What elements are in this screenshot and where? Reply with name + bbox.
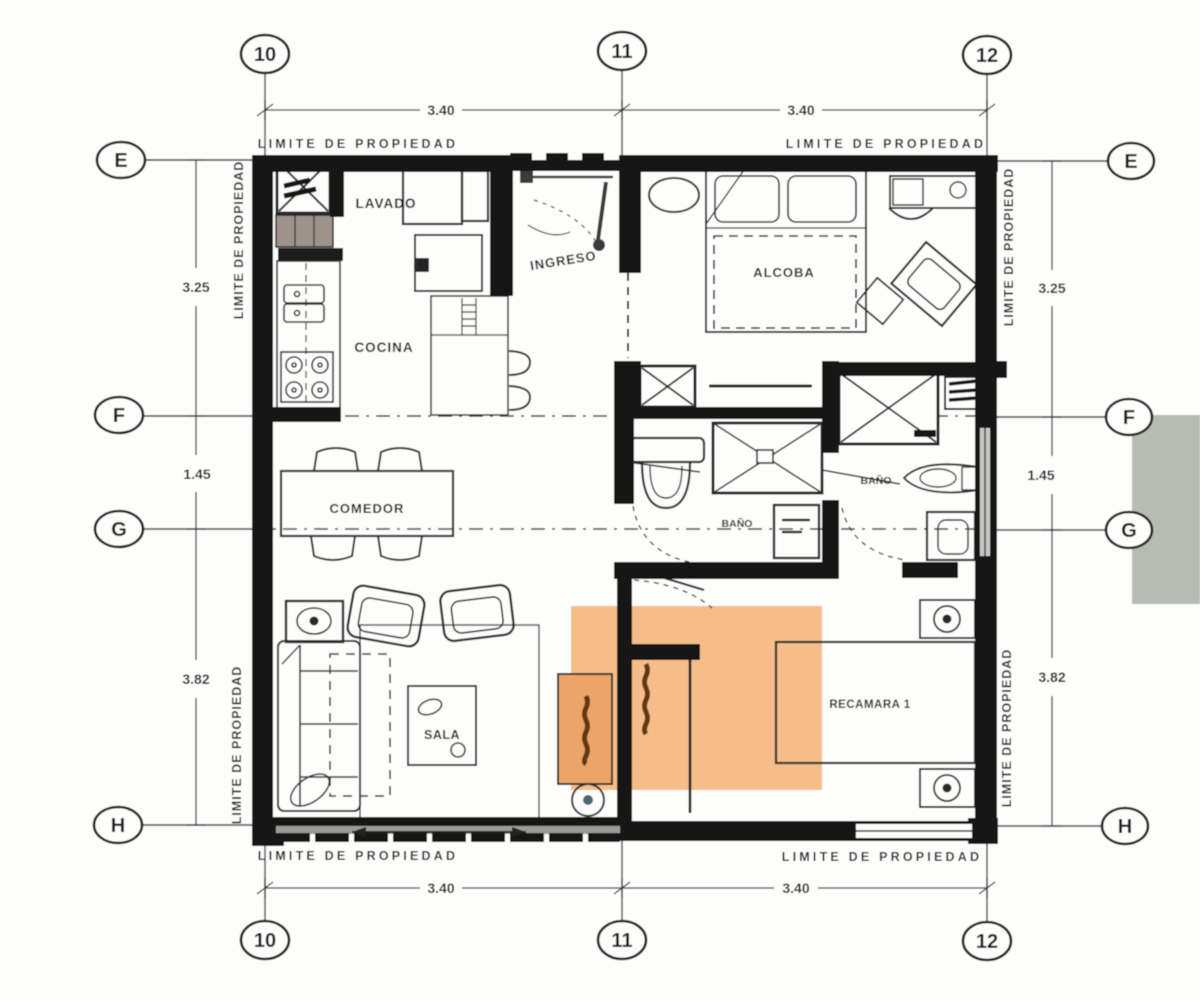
svg-text:3.40: 3.40 bbox=[782, 880, 809, 896]
svg-text:3.40: 3.40 bbox=[427, 880, 454, 896]
svg-text:3.82: 3.82 bbox=[182, 671, 209, 687]
svg-text:RECAMARA 1: RECAMARA 1 bbox=[829, 699, 910, 711]
svg-text:F: F bbox=[1123, 407, 1135, 429]
svg-text:COMEDOR: COMEDOR bbox=[330, 501, 405, 516]
svg-text:10: 10 bbox=[254, 930, 276, 952]
svg-text:3.40: 3.40 bbox=[787, 102, 814, 118]
svg-text:F: F bbox=[113, 405, 125, 427]
svg-text:12: 12 bbox=[976, 45, 998, 67]
svg-text:BAÑO: BAÑO bbox=[861, 474, 892, 487]
svg-text:E: E bbox=[1124, 151, 1137, 173]
svg-text:H: H bbox=[111, 815, 125, 837]
svg-text:SALA: SALA bbox=[424, 728, 460, 742]
svg-text:COCINA: COCINA bbox=[354, 340, 413, 355]
svg-text:1.45: 1.45 bbox=[1027, 467, 1054, 483]
svg-text:H: H bbox=[1118, 816, 1132, 838]
svg-text:LAVADO: LAVADO bbox=[356, 196, 417, 211]
svg-text:3.25: 3.25 bbox=[1038, 280, 1065, 296]
svg-text:LIMITE DE PROPIEDAD: LIMITE DE PROPIEDAD bbox=[786, 137, 986, 151]
svg-text:G: G bbox=[111, 519, 127, 541]
svg-text:E: E bbox=[114, 150, 127, 172]
svg-text:ALCOBA: ALCOBA bbox=[753, 265, 815, 280]
svg-text:3.40: 3.40 bbox=[427, 102, 454, 118]
svg-text:1.45: 1.45 bbox=[183, 466, 210, 482]
svg-text:LIMITE DE PROPIEDAD: LIMITE DE PROPIEDAD bbox=[258, 849, 458, 863]
svg-text:3.25: 3.25 bbox=[182, 279, 209, 295]
svg-text:LIMITE DE PROPIEDAD: LIMITE DE PROPIEDAD bbox=[258, 137, 458, 151]
svg-text:G: G bbox=[1121, 520, 1137, 542]
svg-text:LIMITE DE PROPIEDAD: LIMITE DE PROPIEDAD bbox=[782, 850, 982, 864]
svg-text:LIMITE DE PROPIEDAD: LIMITE DE PROPIEDAD bbox=[232, 161, 246, 320]
svg-text:LIMITE DE PROPIEDAD: LIMITE DE PROPIEDAD bbox=[1002, 168, 1016, 327]
svg-text:LIMITE DE PROPIEDAD: LIMITE DE PROPIEDAD bbox=[230, 666, 244, 825]
svg-text:BAÑO: BAÑO bbox=[722, 517, 753, 530]
svg-text:11: 11 bbox=[611, 41, 632, 63]
svg-text:3.82: 3.82 bbox=[1038, 669, 1065, 685]
svg-text:LIMITE DE PROPIEDAD: LIMITE DE PROPIEDAD bbox=[1000, 649, 1014, 808]
svg-text:12: 12 bbox=[976, 931, 998, 953]
svg-text:10: 10 bbox=[254, 44, 276, 66]
svg-text:11: 11 bbox=[611, 930, 632, 952]
